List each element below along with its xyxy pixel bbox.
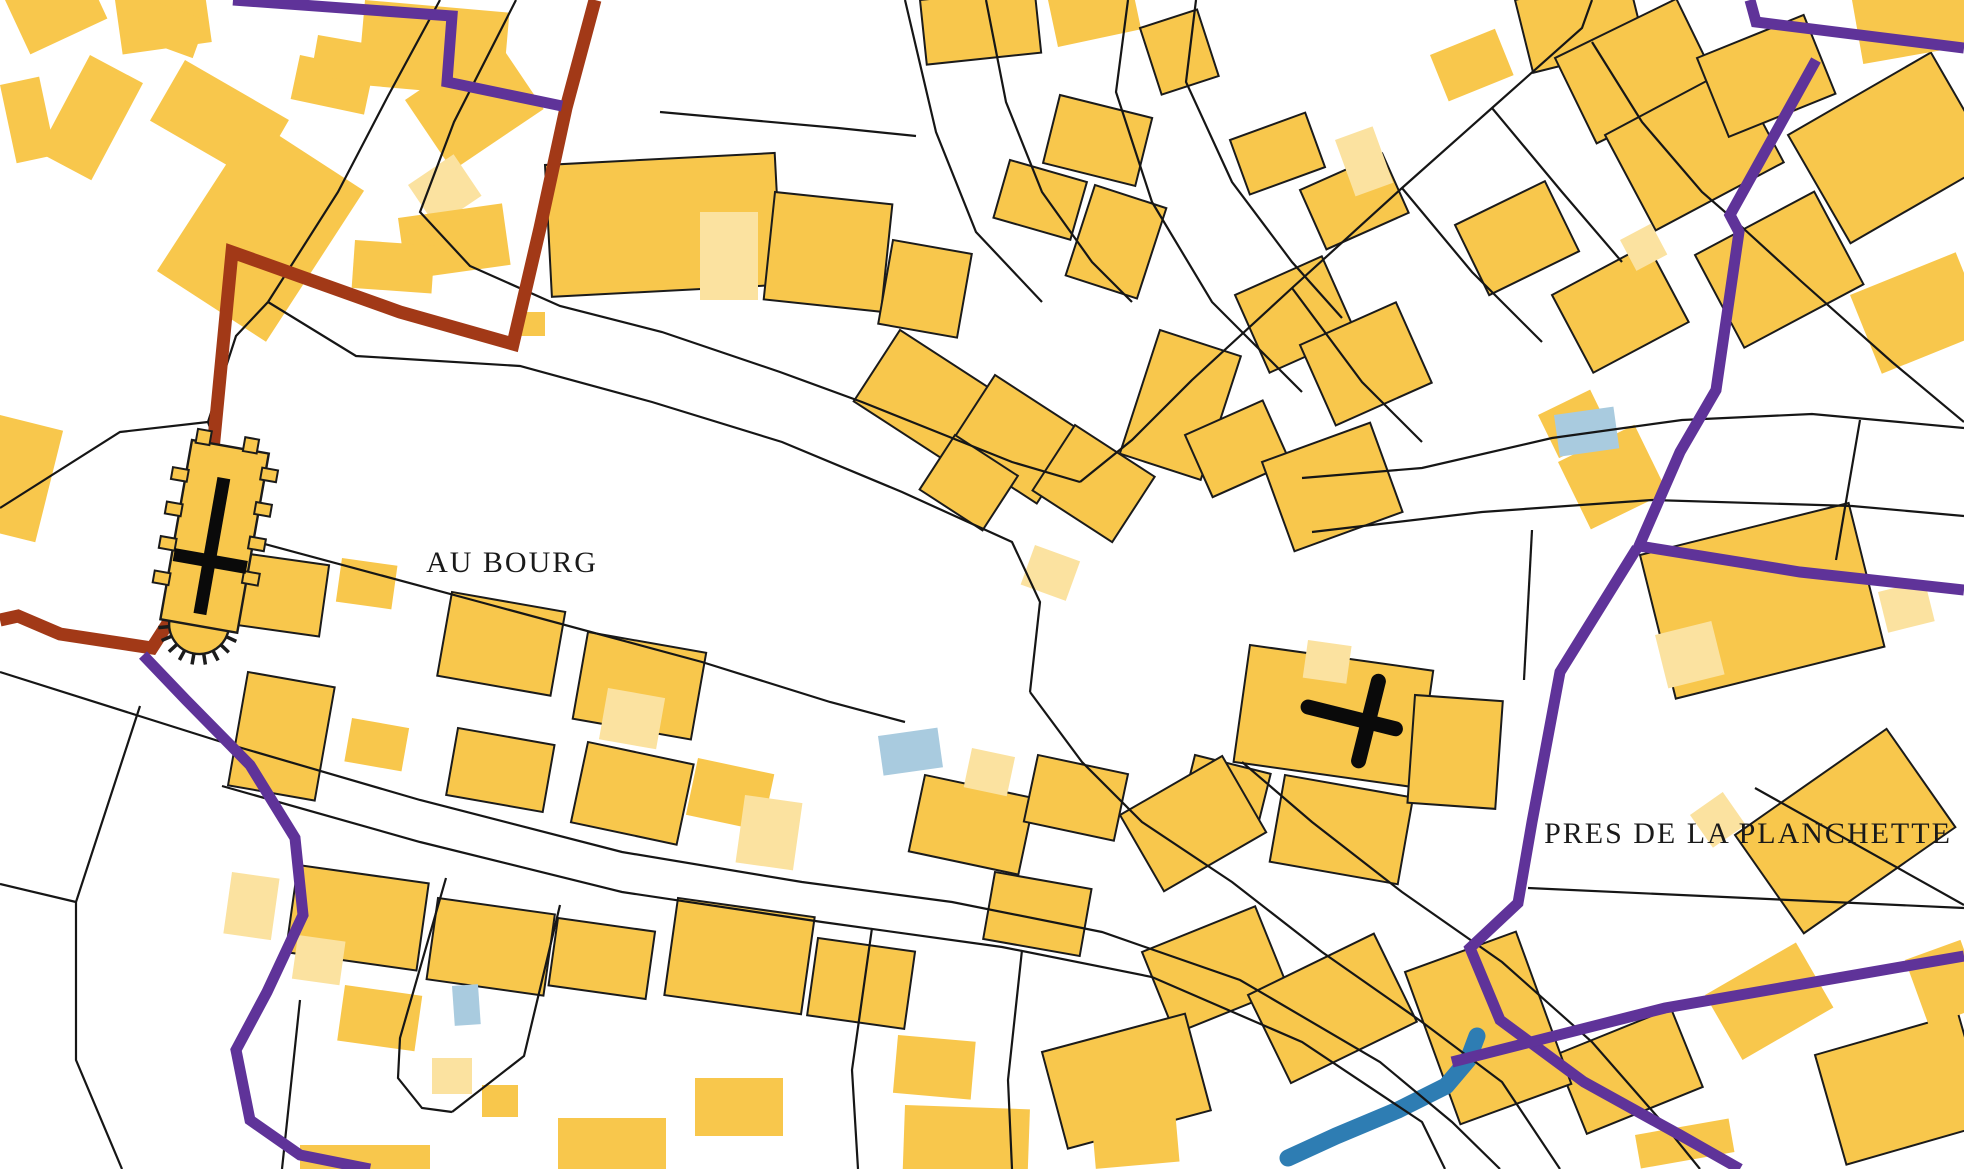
place-label-pres-de-la-planchette: PRES DE LA PLANCHETTE bbox=[1544, 817, 1952, 850]
buildings-layer bbox=[0, 0, 1964, 1169]
cadastral-map-viewport: AU BOURG PRES DE LA PLANCHETTE bbox=[0, 0, 1964, 1169]
place-label-au-bourg: AU BOURG bbox=[426, 546, 598, 579]
cadastral-map: AU BOURG PRES DE LA PLANCHETTE bbox=[0, 0, 1964, 1169]
